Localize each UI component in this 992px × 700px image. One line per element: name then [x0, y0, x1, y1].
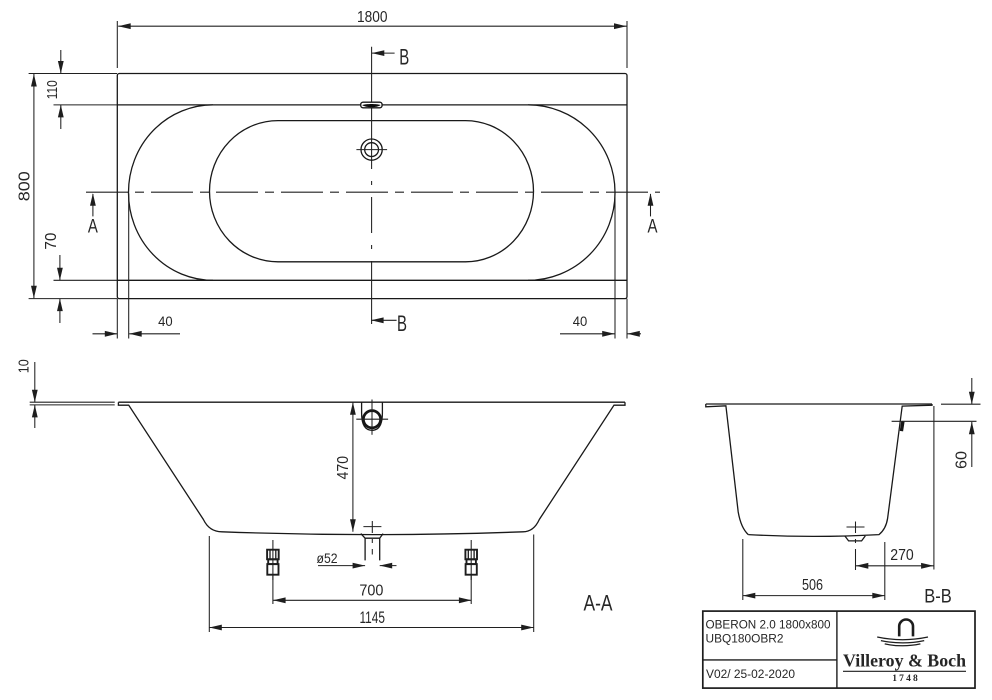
svg-text:10: 10	[16, 359, 33, 373]
svg-text:V02/ 25-02-2020: V02/ 25-02-2020	[706, 667, 795, 681]
svg-text:800: 800	[17, 171, 34, 201]
svg-text:470: 470	[335, 456, 352, 480]
svg-text:700: 700	[359, 583, 383, 600]
svg-text:A-A: A-A	[584, 591, 613, 616]
svg-text:ø52: ø52	[317, 550, 338, 566]
svg-text:110: 110	[44, 80, 61, 99]
svg-text:40: 40	[158, 313, 173, 329]
svg-text:UBQ180OBR2: UBQ180OBR2	[706, 632, 784, 646]
svg-text:506: 506	[802, 577, 823, 594]
svg-text:40: 40	[573, 313, 588, 329]
svg-text:Villeroy & Boch: Villeroy & Boch	[843, 651, 966, 671]
svg-text:1748: 1748	[892, 674, 918, 684]
svg-text:1800: 1800	[357, 9, 388, 26]
svg-text:A: A	[88, 217, 98, 238]
svg-text:270: 270	[890, 547, 914, 564]
svg-text:1145: 1145	[359, 609, 385, 627]
svg-text:60: 60	[953, 451, 970, 469]
svg-text:B-B: B-B	[924, 586, 952, 607]
svg-text:B: B	[397, 311, 407, 336]
svg-text:OBERON 2.0 1800x800: OBERON 2.0 1800x800	[706, 617, 831, 631]
svg-text:A: A	[648, 217, 658, 238]
svg-text:70: 70	[43, 233, 60, 250]
svg-text:B: B	[399, 45, 409, 70]
